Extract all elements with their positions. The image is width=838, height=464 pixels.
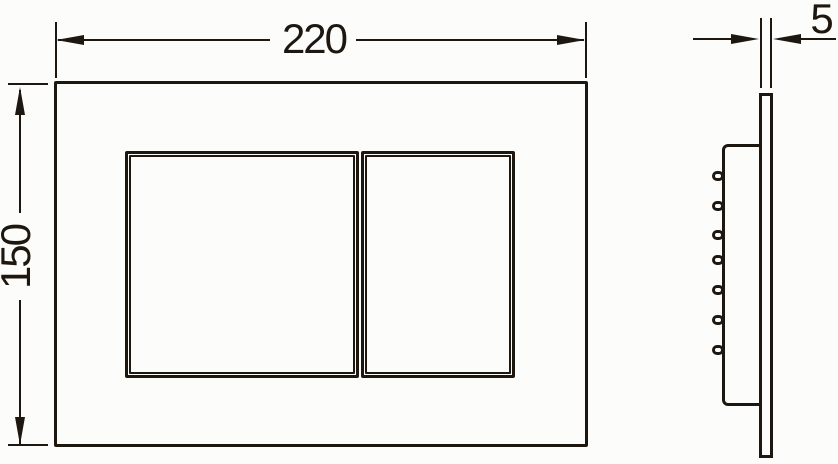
width-dimension-label: 220 <box>268 18 360 60</box>
depth-extension-line-left <box>760 18 762 88</box>
width-extension-line-left <box>55 22 57 78</box>
width-extension-line-right <box>585 22 587 78</box>
height-arrow-down-icon <box>15 417 25 445</box>
flush-button-large-inner-line <box>129 155 355 374</box>
side-back-housing <box>722 144 762 406</box>
flush-button-small-inner-line <box>365 155 511 374</box>
flush-button-large <box>125 151 359 378</box>
flush-button-small <box>361 151 515 378</box>
width-dim-line-left <box>58 39 270 41</box>
depth-dimension-label: 5 <box>799 0 838 40</box>
depth-arrow-left-icon <box>773 34 801 44</box>
width-dim-line-right <box>356 39 584 41</box>
width-arrow-right-icon <box>557 35 585 45</box>
height-extension-line-top <box>8 83 48 85</box>
depth-arrow-right-icon <box>731 34 759 44</box>
height-dimension-label: 150 <box>0 207 37 307</box>
depth-extension-line-right <box>770 18 772 88</box>
depth-dim-line-left <box>693 38 731 40</box>
technical-drawing-canvas: 220 150 5 <box>0 0 838 464</box>
height-dim-line-top <box>19 90 21 213</box>
side-plate-profile <box>759 93 773 458</box>
height-extension-line-bottom <box>8 444 48 446</box>
